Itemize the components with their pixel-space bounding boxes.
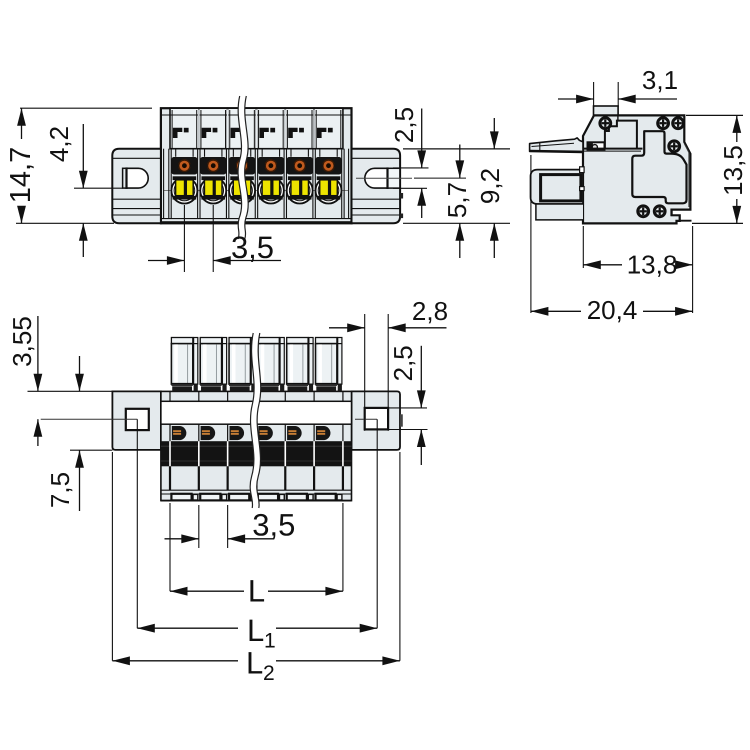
svg-text:L: L (248, 574, 265, 609)
svg-text:2,5: 2,5 (389, 107, 419, 143)
svg-text:20,4: 20,4 (587, 295, 638, 325)
svg-text:2,8: 2,8 (412, 296, 448, 326)
svg-text:3,5: 3,5 (252, 508, 295, 543)
svg-text:14,7: 14,7 (5, 147, 37, 203)
svg-text:L: L (246, 646, 263, 681)
svg-text:13,5: 13,5 (718, 145, 748, 196)
svg-text:2: 2 (263, 662, 275, 685)
svg-text:4,2: 4,2 (44, 126, 74, 162)
svg-text:7,5: 7,5 (45, 472, 75, 508)
svg-text:L: L (247, 613, 264, 648)
svg-text:9,2: 9,2 (475, 168, 505, 204)
svg-text:3,1: 3,1 (642, 65, 678, 95)
svg-text:3,55: 3,55 (7, 316, 37, 367)
svg-text:2,5: 2,5 (388, 345, 418, 381)
svg-text:13,8: 13,8 (627, 250, 678, 280)
svg-text:1: 1 (264, 630, 276, 653)
svg-text:3,5: 3,5 (231, 230, 274, 265)
svg-text:5,7: 5,7 (442, 182, 472, 218)
